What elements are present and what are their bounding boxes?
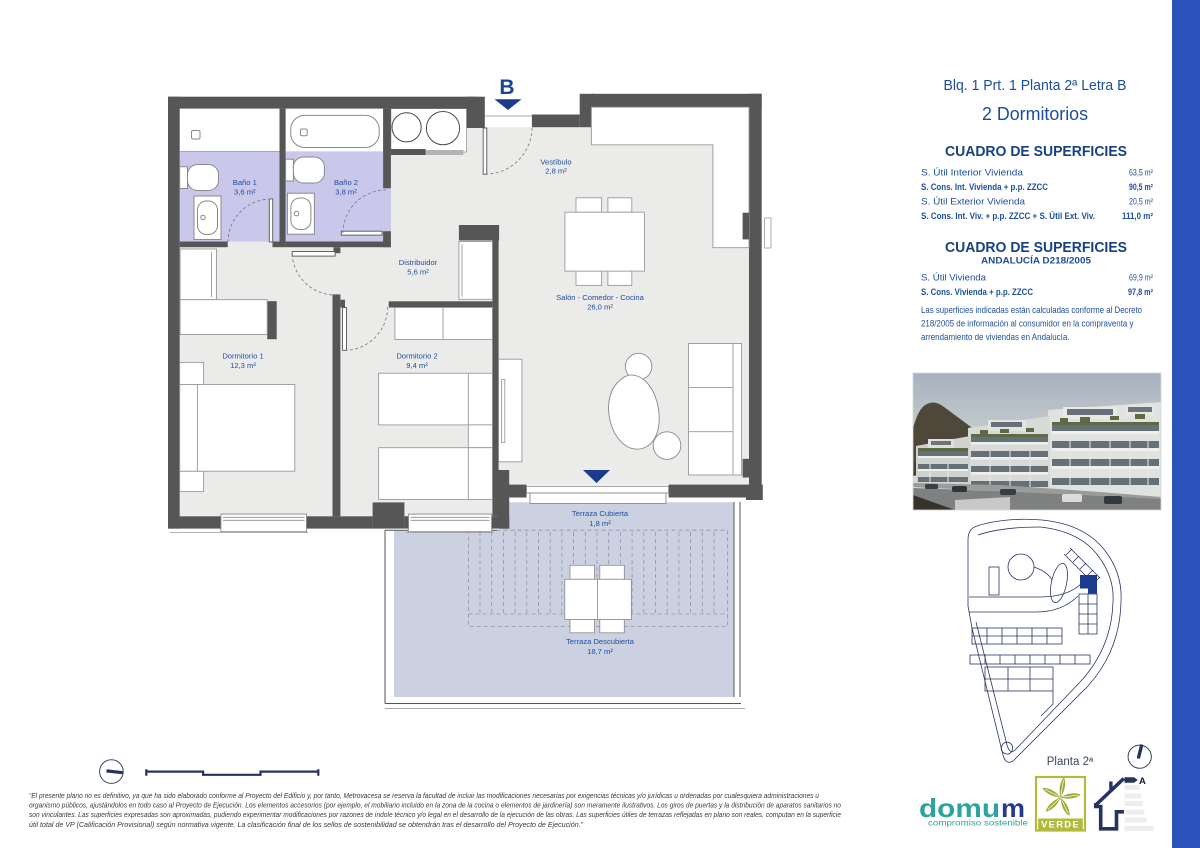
svg-text:90,5 m²: 90,5 m² [1129, 182, 1153, 192]
svg-text:2,8 m²: 2,8 m² [545, 167, 567, 176]
svg-text:3,6 m²: 3,6 m² [234, 188, 256, 197]
svg-text:S. Útil Interior Vivienda: S. Útil Interior Vivienda [921, 167, 1023, 177]
svg-text:Dormitorio 1: Dormitorio 1 [222, 352, 263, 361]
svg-text:Blq. 1 Prt. 1 Planta 2ª Letra: Blq. 1 Prt. 1 Planta 2ª Letra B [944, 78, 1127, 94]
svg-text:63,5 m²: 63,5 m² [1129, 167, 1153, 177]
svg-text:Baño 1: Baño 1 [233, 178, 257, 187]
svg-text:S. Cons. Vivienda + p.p. ZZCC: S. Cons. Vivienda + p.p. ZZCC [921, 287, 1033, 297]
svg-text:Vestíbulo: Vestíbulo [540, 158, 571, 167]
svg-text:5,6 m²: 5,6 m² [407, 267, 429, 276]
svg-text:útil total de VP (Calificación: útil total de VP (Calificación Provision… [29, 820, 584, 829]
svg-text:CUADRO DE SUPERFICIES: CUADRO DE SUPERFICIES [945, 240, 1127, 256]
svg-text:111,0 m²: 111,0 m² [1122, 211, 1153, 221]
svg-text:arrendamiento de viviendas en: arrendamiento de viviendas en Andalucía. [921, 332, 1070, 342]
svg-text:son vinculantes. Las superfici: son vinculantes. Las superficies expresa… [29, 810, 841, 819]
svg-text:218/2005 de información al con: 218/2005 de información al consumidor en… [921, 319, 1134, 329]
svg-text:“El presente plano no es defin: “El presente plano no es definitivo, ya … [29, 791, 819, 800]
svg-text:Baño 2: Baño 2 [334, 178, 358, 187]
svg-text:1,8 m²: 1,8 m² [589, 519, 611, 528]
svg-text:CUADRO DE SUPERFICIES: CUADRO DE SUPERFICIES [945, 144, 1127, 160]
svg-text:Terraza Cubierta: Terraza Cubierta [572, 509, 629, 518]
svg-text:S. Cons. Int. Viv. + p.p. ZZCC: S. Cons. Int. Viv. + p.p. ZZCC + S. Útil… [921, 210, 1095, 221]
svg-text:ANDALUCÍA D218/2005: ANDALUCÍA D218/2005 [981, 256, 1091, 266]
svg-text:9,4 m²: 9,4 m² [406, 361, 428, 370]
svg-text:Terraza Descubierta: Terraza Descubierta [566, 637, 635, 646]
svg-text:S. Útil Exterior Vivienda: S. Útil Exterior Vivienda [921, 196, 1025, 206]
svg-text:20,5 m²: 20,5 m² [1129, 196, 1153, 206]
svg-text:VERDE: VERDE [1041, 820, 1080, 831]
svg-text:Las superficies indicadas está: Las superficies indicadas están calculad… [921, 305, 1142, 315]
svg-text:Planta 2ª: Planta 2ª [1047, 756, 1094, 768]
svg-text:3,8 m²: 3,8 m² [335, 188, 357, 197]
svg-text:2 Dormitorios: 2 Dormitorios [982, 104, 1088, 124]
svg-text:S. Cons. Int. Vivienda + p.p.: S. Cons. Int. Vivienda + p.p. ZZCC [921, 182, 1048, 192]
svg-text:Salón - Comedor - Cocina: Salón - Comedor - Cocina [556, 293, 645, 302]
svg-text:69,9 m²: 69,9 m² [1129, 273, 1153, 283]
svg-text:B: B [499, 76, 514, 99]
svg-text:Dormitorio 2: Dormitorio 2 [396, 352, 437, 361]
svg-text:organismo públicos, ajustándol: organismo públicos, ajustándolos en todo… [29, 801, 841, 810]
svg-text:18,7 m²: 18,7 m² [587, 647, 613, 656]
svg-text:A: A [1139, 776, 1146, 787]
svg-text:S. Útil Vivienda: S. Útil Vivienda [921, 273, 986, 283]
svg-text:97,8 m²: 97,8 m² [1128, 287, 1153, 297]
svg-text:12,3 m²: 12,3 m² [230, 361, 256, 370]
svg-text:26,0 m²: 26,0 m² [587, 303, 613, 312]
svg-text:compromiso sostenible: compromiso sostenible [928, 819, 1028, 828]
svg-text:Distribuidor: Distribuidor [399, 258, 438, 267]
